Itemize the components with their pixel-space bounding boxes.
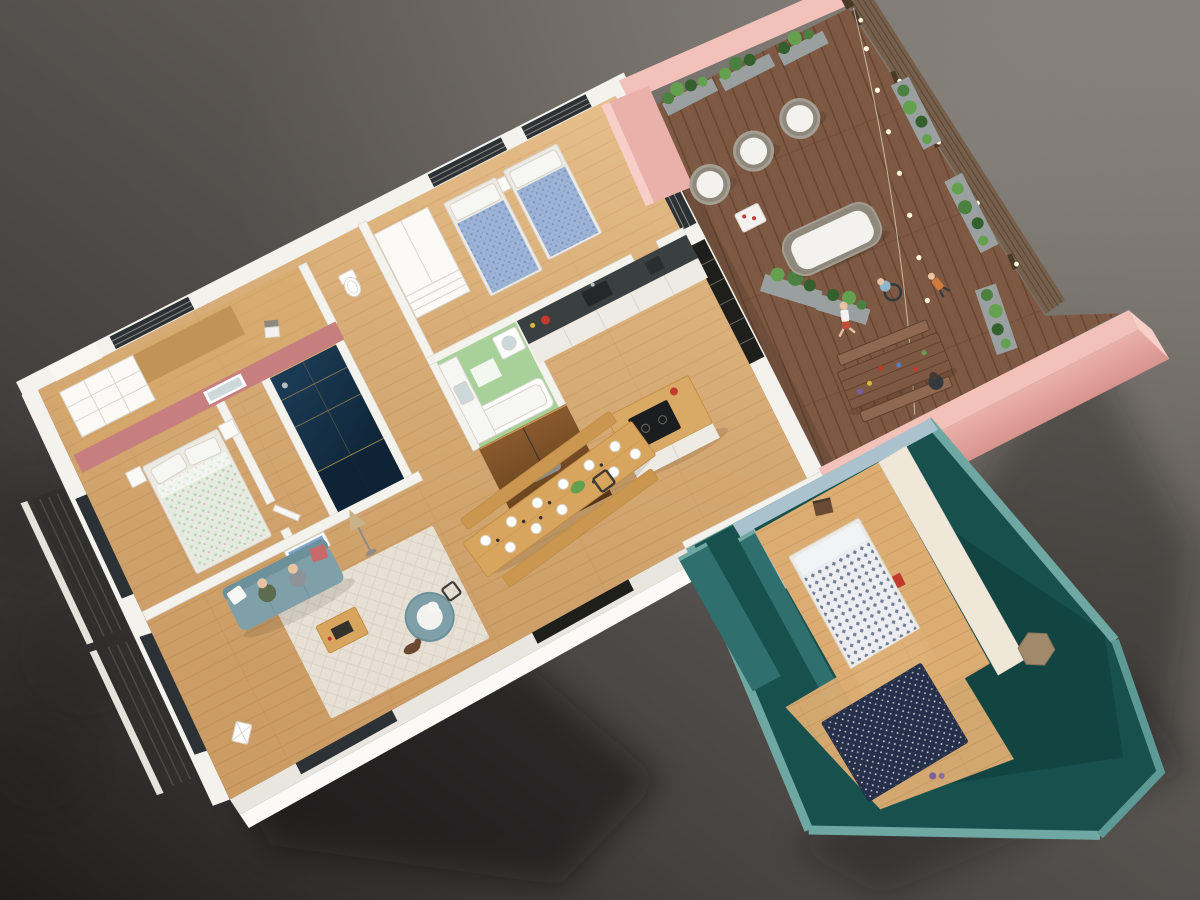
hall-chair <box>264 320 279 338</box>
scene-svg <box>0 0 1200 900</box>
floorplan-render <box>0 0 1200 900</box>
